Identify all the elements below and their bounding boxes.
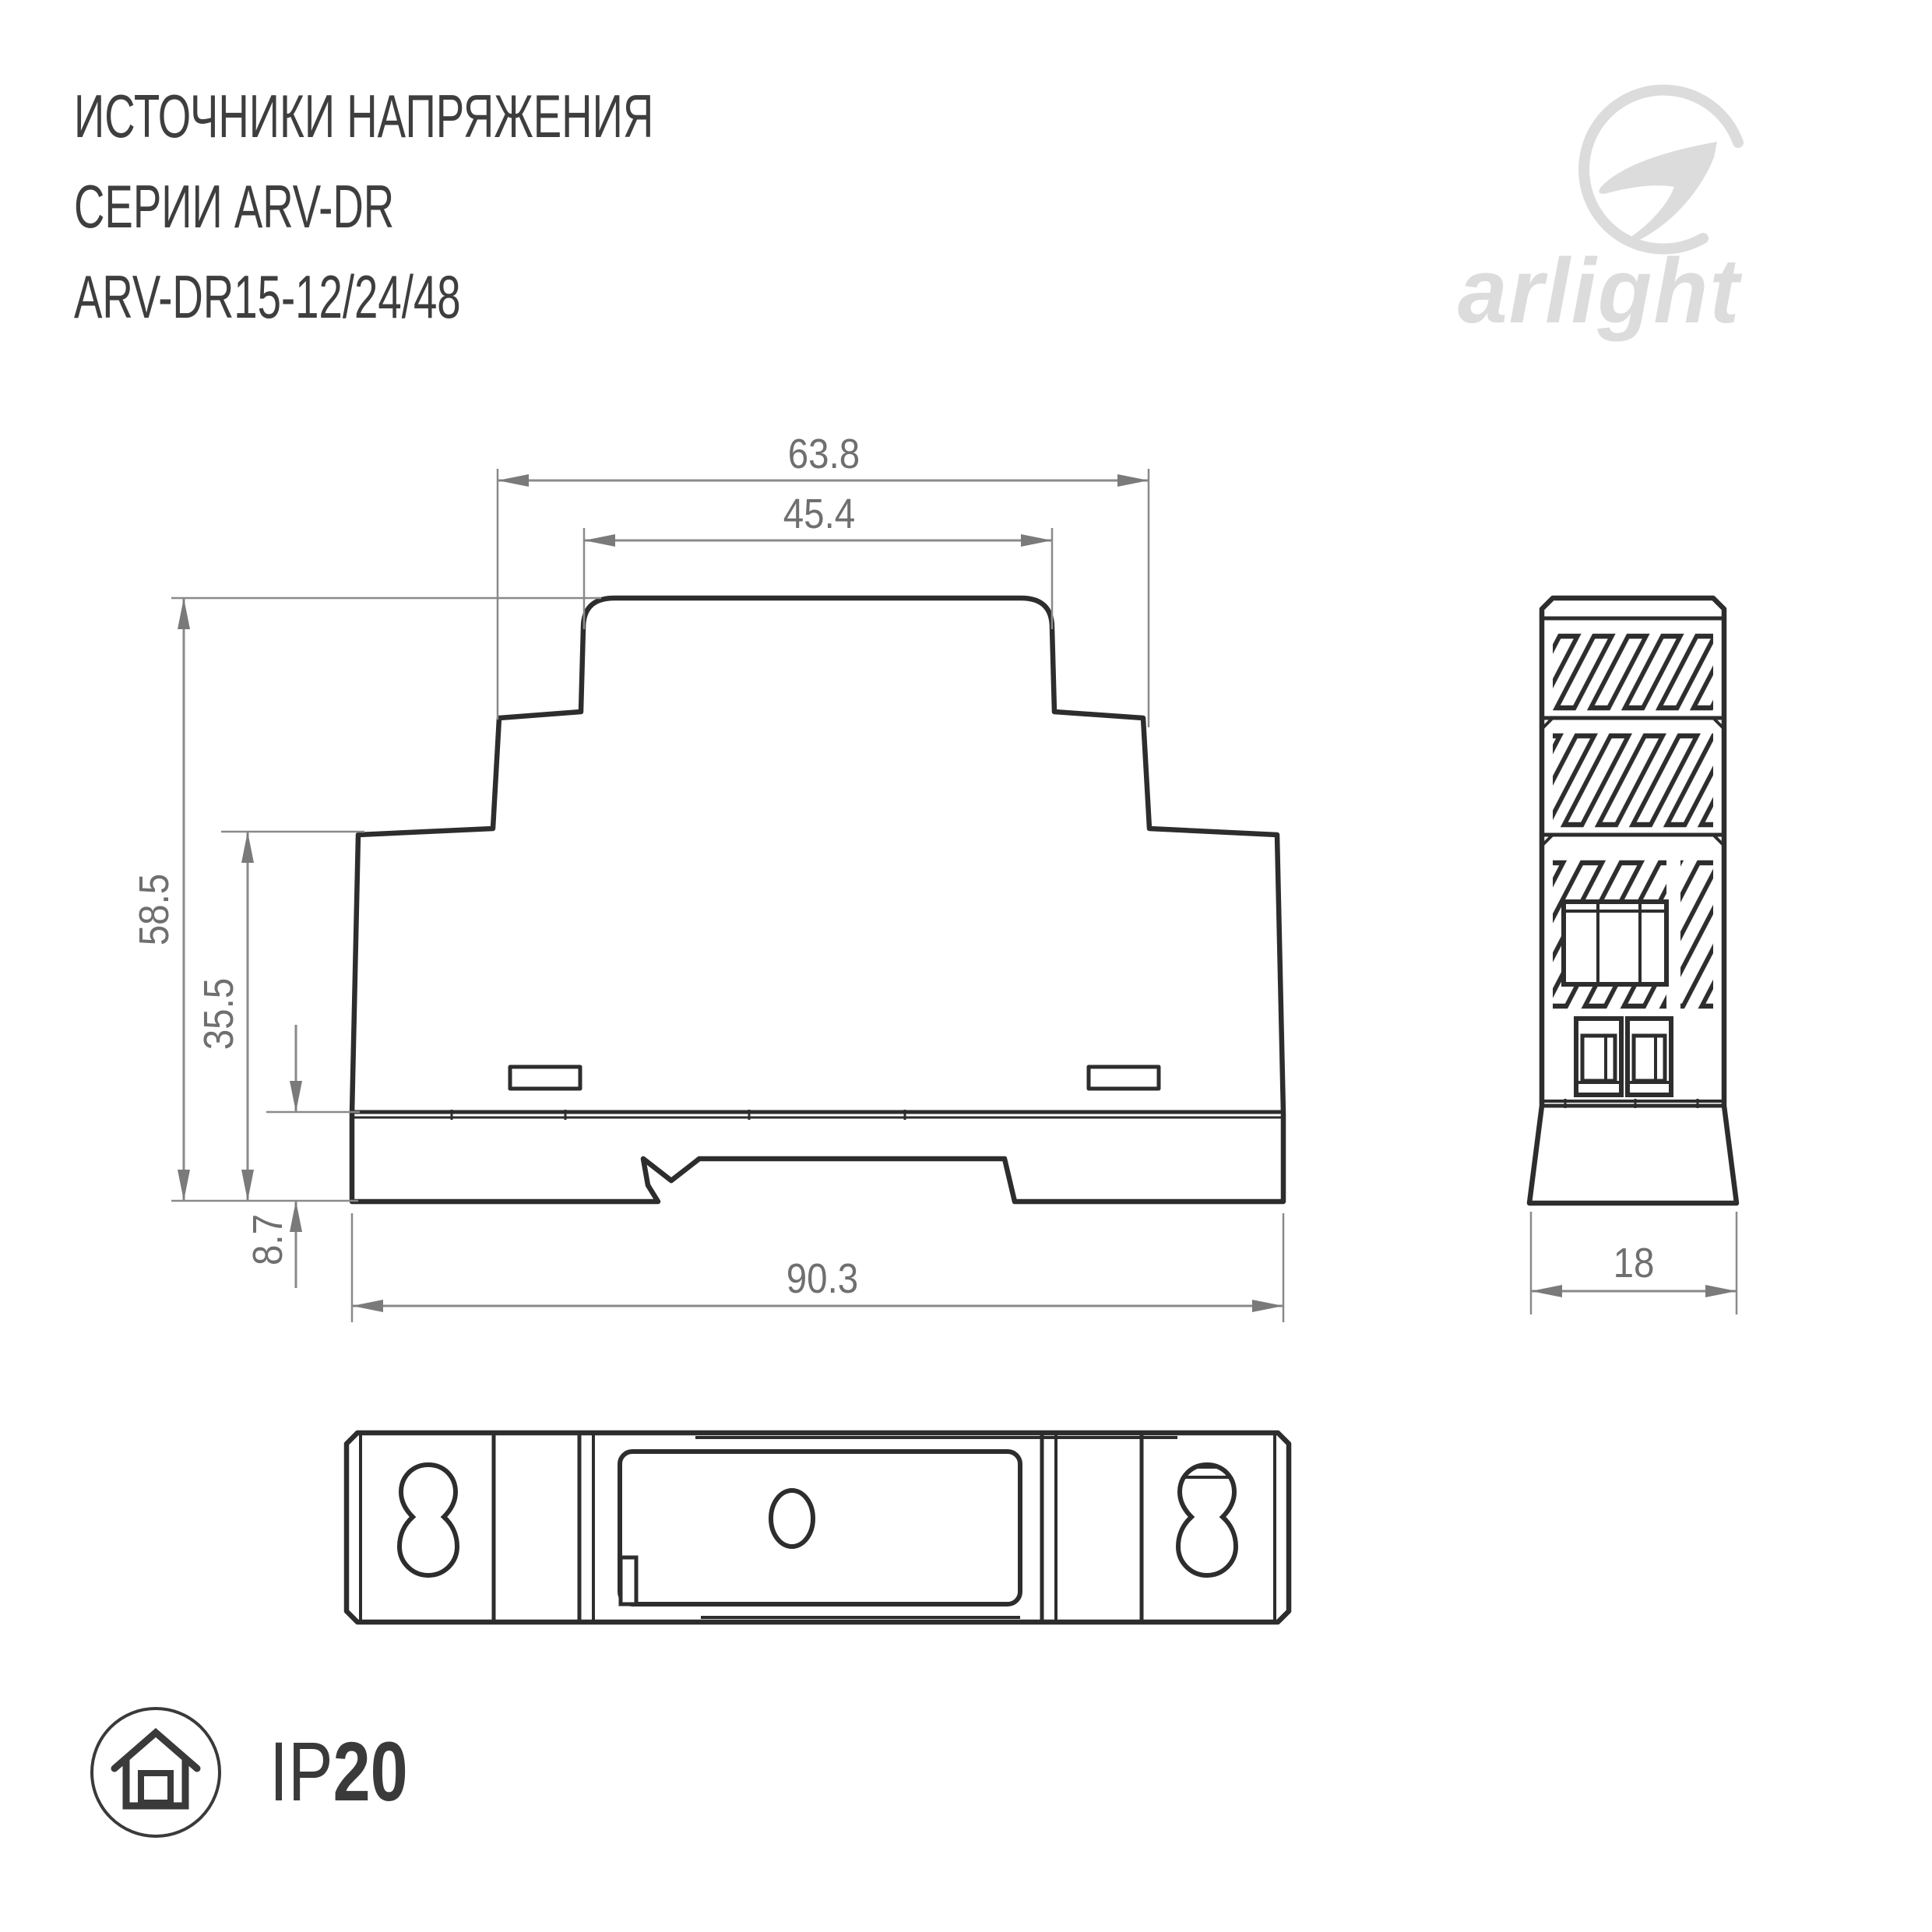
arlight-logo-mark	[1584, 90, 1738, 249]
side-vent-band-middle	[1553, 730, 1713, 830]
page-title: ИСТОЧНИКИ НАПРЯЖЕНИЯ СЕРИИ ARV-DR ARV-DR…	[74, 83, 653, 331]
dim-total-width: 90.3	[352, 1213, 1283, 1322]
dim-depth: 18	[1531, 1212, 1737, 1314]
arlight-logo-text: arlight	[1458, 239, 1743, 342]
dim-body-height: 35.5	[195, 832, 364, 1201]
side-view	[1529, 598, 1737, 1203]
dim-label-45-4: 45.4	[783, 490, 855, 537]
front-view	[352, 598, 1283, 1202]
ip-rating-text: IP20	[269, 1724, 408, 1818]
ip-value: 20	[333, 1724, 408, 1818]
arlight-logo: arlight	[1458, 90, 1743, 343]
side-terminal-block	[1564, 902, 1666, 984]
cover-corner-notch	[621, 1557, 636, 1604]
dim-label-63-8: 63.8	[788, 430, 860, 477]
center-cover-panel	[620, 1452, 1020, 1604]
side-vent-main-right	[1680, 857, 1713, 1012]
title-line-1: ИСТОЧНИКИ НАПРЯЖЕНИЯ	[74, 83, 653, 150]
dim-base-height: 8.7	[244, 1025, 360, 1288]
datasheet-page: ИСТОЧНИКИ НАПРЯЖЕНИЯ СЕРИИ ARV-DR ARV-DR…	[0, 0, 1932, 1932]
dim-label-90-3: 90.3	[787, 1255, 858, 1302]
technical-drawing-canvas: ИСТОЧНИКИ НАПРЯЖЕНИЯ СЕРИИ ARV-DR ARV-DR…	[0, 0, 1932, 1932]
side-terminal-window-right	[1628, 1019, 1671, 1095]
dim-label-35-5: 35.5	[195, 978, 242, 1050]
title-line-3: ARV-DR15-12/24/48	[74, 263, 461, 331]
ip-prefix: IP	[269, 1724, 333, 1818]
side-vent-band-top	[1553, 631, 1713, 713]
house-icon	[114, 1733, 197, 1806]
dim-label-58-5: 58.5	[130, 874, 178, 945]
bottom-view	[347, 1433, 1289, 1622]
dim-label-18: 18	[1614, 1239, 1655, 1286]
title-line-2: СЕРИИ ARV-DR	[74, 173, 394, 241]
dim-label-8-7: 8.7	[244, 1214, 291, 1265]
side-terminal-window-left	[1576, 1019, 1621, 1095]
ip-rating-badge: IP20	[92, 1709, 408, 1836]
